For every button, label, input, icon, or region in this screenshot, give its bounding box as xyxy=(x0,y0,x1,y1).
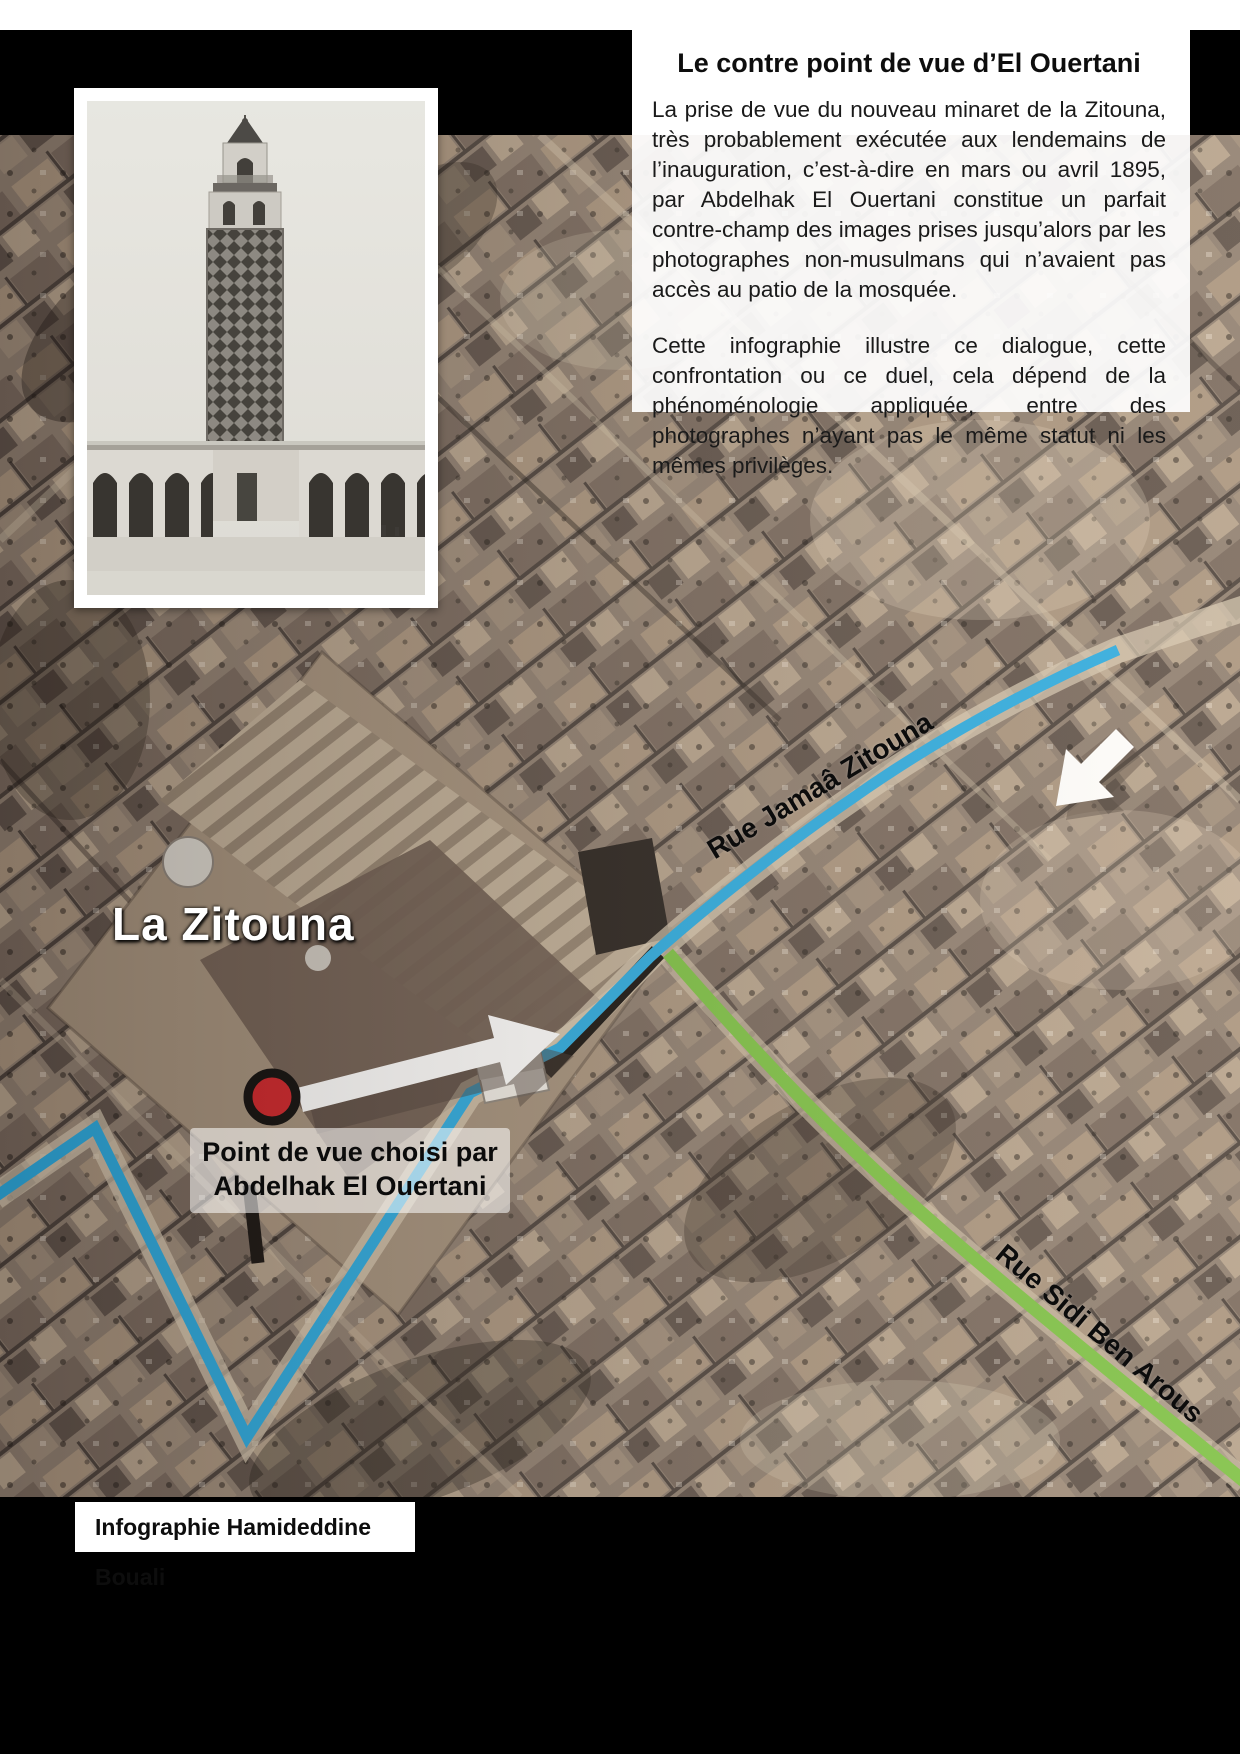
viewpoint-marker-icon xyxy=(248,1073,296,1121)
intro-paragraph-1: La prise de vue du nouveau minaret de la… xyxy=(652,95,1166,304)
historic-photo xyxy=(87,101,425,595)
credit-box: Infographie Hamideddine Bouali xyxy=(75,1502,415,1552)
viewpoint-caption-line2: Abdelhak El Ouertani xyxy=(190,1170,510,1204)
top-black-band-right xyxy=(1190,30,1240,135)
historic-photo-frame xyxy=(74,88,438,608)
infographic-page: La Zitouna Rue Jamaâ Zitouna Rue Sidi Be… xyxy=(0,0,1240,1754)
intro-paragraph-2: Cette infographie illustre ce dialogue, … xyxy=(652,331,1166,481)
intro-text-box: Le contre point de vue d’El Ouertani La … xyxy=(632,30,1190,412)
page-title: Le contre point de vue d’El Ouertani xyxy=(652,48,1166,79)
viewpoint-caption-line1: Point de vue choisi par xyxy=(190,1136,510,1170)
dome-icon xyxy=(163,837,213,887)
map-label-la-zitouna: La Zitouna xyxy=(112,897,355,951)
viewpoint-caption: Point de vue choisi par Abdelhak El Ouer… xyxy=(190,1128,510,1213)
